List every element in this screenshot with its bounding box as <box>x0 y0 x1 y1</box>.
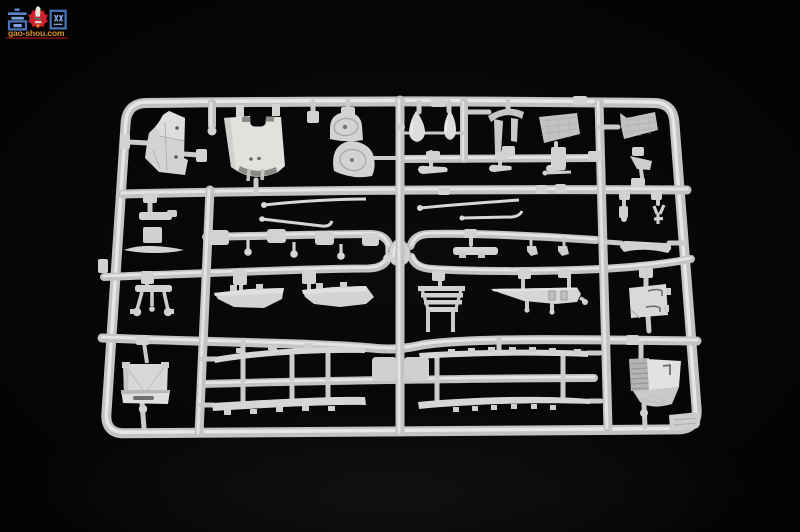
svg-text:gao-shou.com: gao-shou.com <box>8 28 65 38</box>
